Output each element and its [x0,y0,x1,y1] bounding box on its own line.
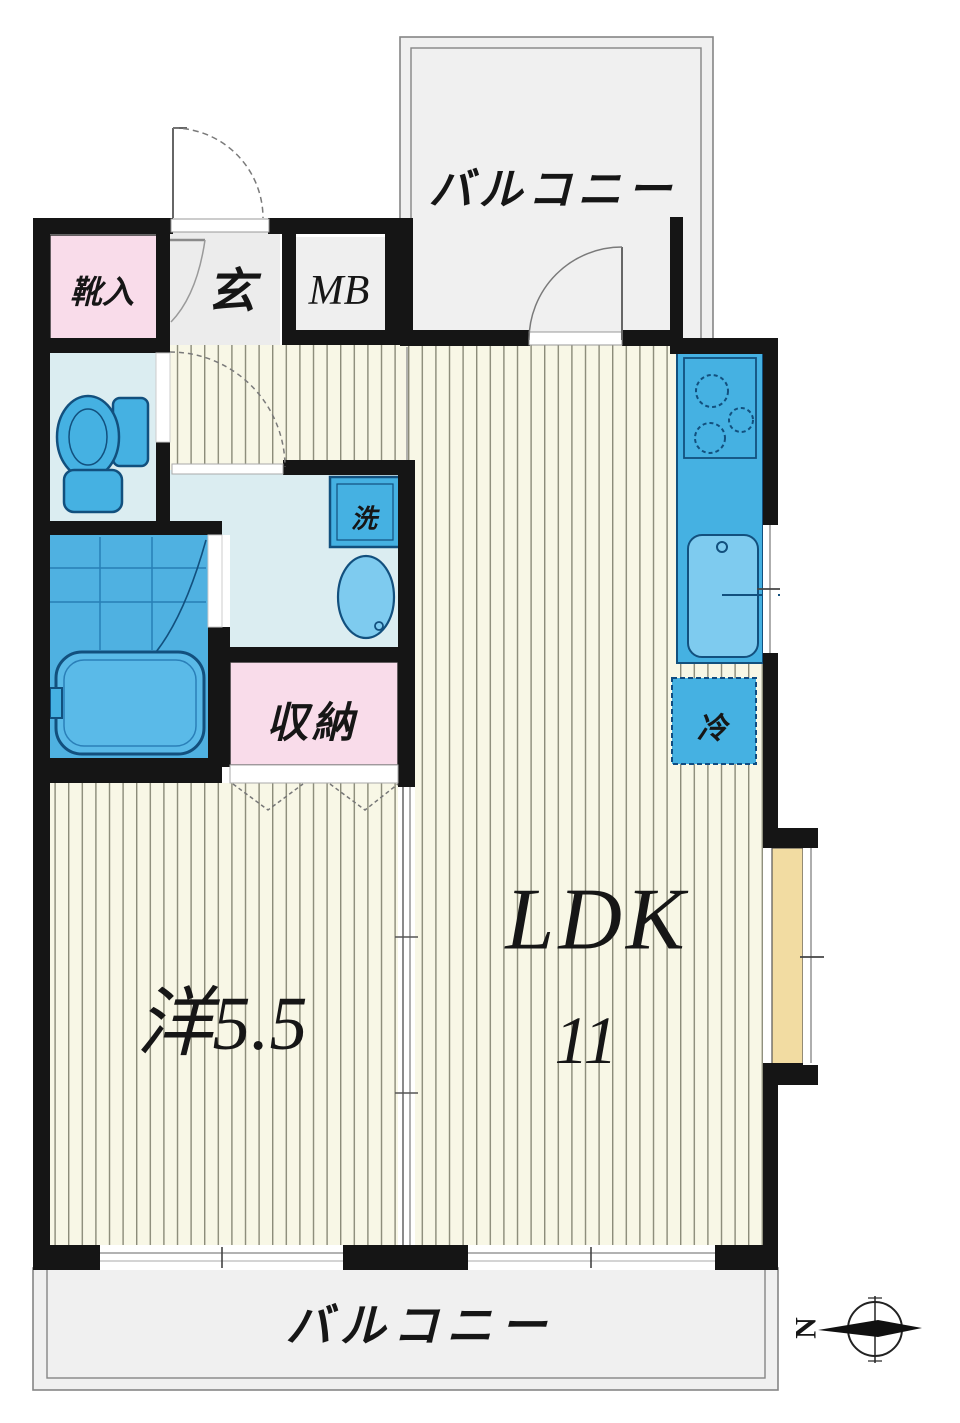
washer-label: 洗 [351,505,380,534]
storage-door-strip [230,765,398,783]
wall-segment [763,653,778,832]
wall-segment [33,338,170,353]
balcony-door-threshold [529,332,622,345]
wall-segment [33,218,50,1270]
bath-door-opening [208,535,222,627]
refrigerator-label: 冷 [697,713,731,746]
ldk-size-label: 11 [555,1002,618,1078]
wall-segment [230,647,413,662]
storage-label: 収納 [266,700,358,747]
wall-segment [763,828,818,848]
window-ldk-south [468,1245,715,1270]
ldk-label: LDK [503,872,688,969]
wall-segment [156,218,170,353]
wall-segment [33,218,173,234]
entrance-threshold [171,219,269,232]
washbasin [338,556,394,638]
wall-segment [715,1245,778,1270]
wall-segment [33,758,222,783]
wall-segment [398,460,415,787]
compass-north-letter: N [790,1317,823,1339]
floor-plan-canvas: バルコニー 靴入 玄 MB 洗 収納 冷 洋5.5 LDK 11 バルコニー N [0,0,960,1423]
wall-segment [400,330,530,346]
toilet-door-opening [156,353,170,442]
wall-segment [208,627,230,767]
wall-segment [763,1085,778,1270]
wall-segment [33,521,222,535]
window-west-room-south [100,1245,343,1270]
wall-segment [343,1245,468,1270]
hallway-floor [170,345,400,475]
meter-box-label: MB [308,268,370,314]
balcony-bottom-label: バルコニー [285,1301,554,1352]
wall-segment [670,217,683,345]
wall-segment [763,345,778,525]
washroom-door-threshold [172,464,283,474]
wall-segment [282,218,296,345]
entrance-label: 玄 [207,266,262,319]
toilet-base [64,470,122,512]
wall-segment [385,218,413,345]
western-room-label: 洋5.5 [137,982,308,1066]
floor-plan: バルコニー 靴入 玄 MB 洗 収納 冷 洋5.5 LDK 11 バルコニー N [0,0,960,1423]
wall-segment [282,330,413,345]
wall-segment [283,460,413,475]
wall-segment [33,1245,100,1270]
bay-window-sill [772,848,803,1065]
divider-track-bg [398,787,415,1245]
bathtub [56,652,204,754]
bath-faucet [50,688,62,718]
wall-segment [670,338,778,354]
shoe-cabinet-label: 靴入 [70,274,134,310]
wall-segment [763,1063,818,1085]
stove [684,358,756,458]
balcony-top-label: バルコニー [428,166,677,215]
